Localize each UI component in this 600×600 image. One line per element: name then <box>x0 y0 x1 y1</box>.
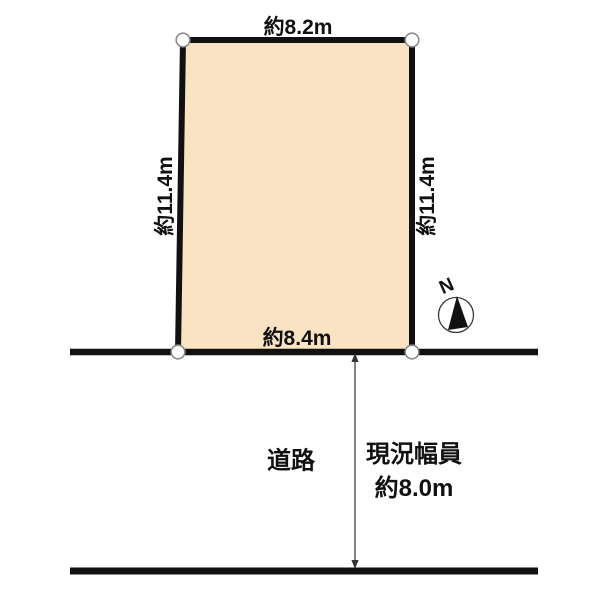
land-parcel-shape <box>178 40 412 352</box>
left-dimension-label: 約11.4m <box>149 156 179 235</box>
road-width-caption: 現況幅員 約8.0m <box>366 438 462 506</box>
road-width-caption-line2: 約8.0m <box>366 472 462 506</box>
corner-marker-top-right <box>405 33 419 47</box>
corner-marker-bottom-left <box>171 345 185 359</box>
compass-needle <box>448 296 468 330</box>
right-dimension-label: 約11.4m <box>411 156 441 235</box>
diagram-drawing <box>0 0 600 600</box>
top-dimension-label: 約8.2m <box>264 11 333 41</box>
corner-marker-bottom-right <box>405 345 419 359</box>
road-width-caption-line1: 現況幅員 <box>366 438 462 472</box>
bottom-dimension-label: 約8.4m <box>263 322 332 352</box>
corner-marker-top-left <box>176 33 190 47</box>
land-plot-diagram: 約8.2m 約11.4m 約11.4m 約8.4m 道路 現況幅員 約8.0m … <box>0 0 600 600</box>
road-label: 道路 <box>267 441 315 476</box>
